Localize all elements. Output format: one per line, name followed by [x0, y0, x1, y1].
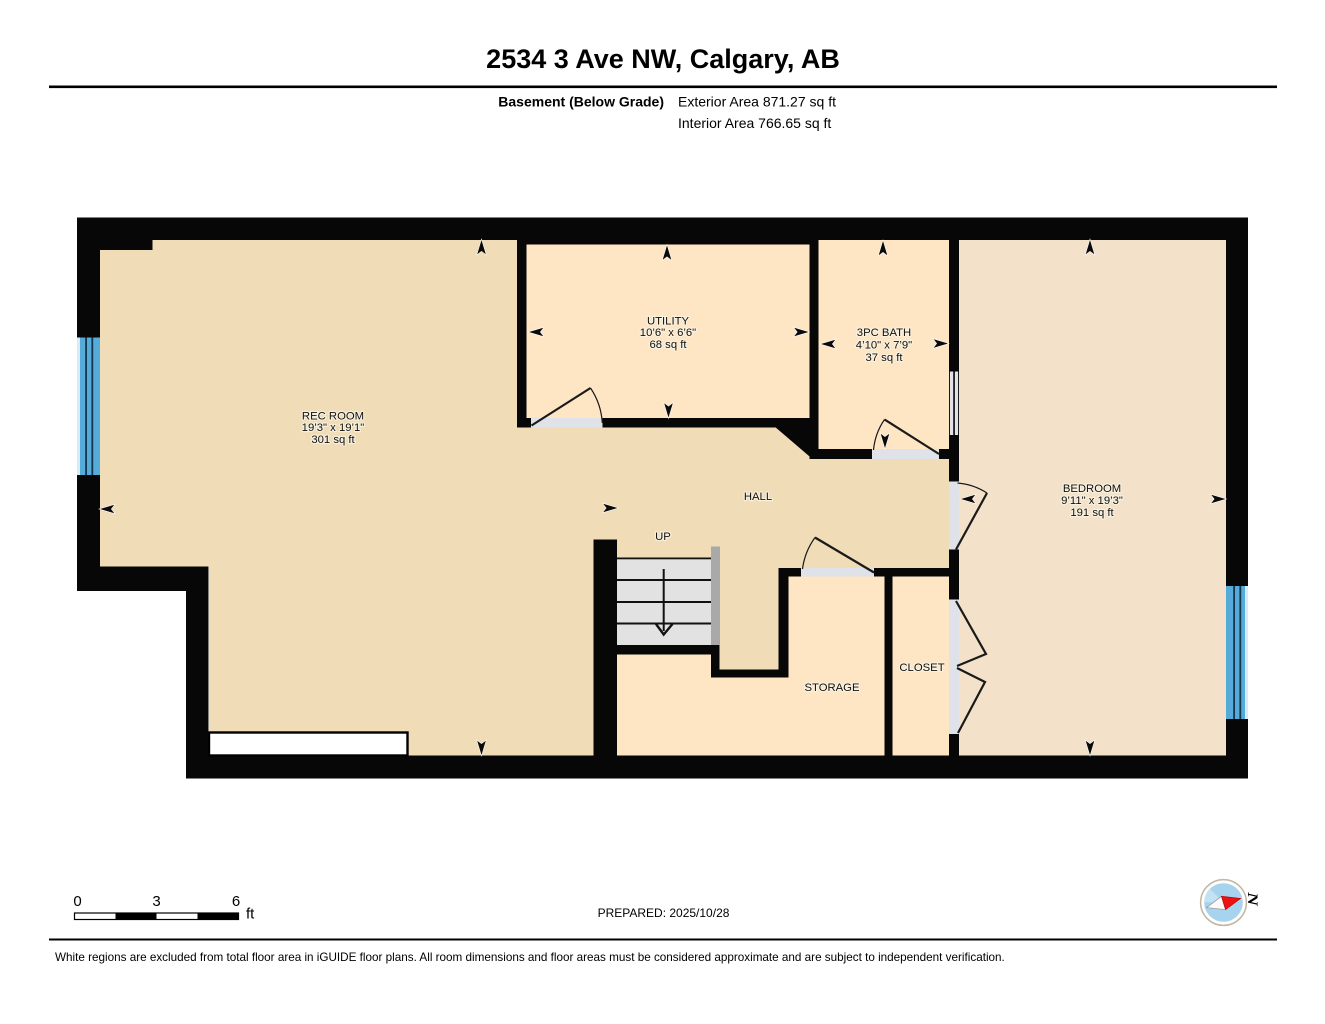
svg-text:3: 3 — [152, 893, 160, 910]
svg-text:N: N — [1244, 891, 1260, 907]
svg-text:UP: UP — [655, 531, 671, 543]
svg-text:CLOSET: CLOSET — [899, 662, 944, 674]
svg-text:2534 3 Ave NW, Calgary, AB: 2534 3 Ave NW, Calgary, AB — [486, 44, 840, 74]
svg-text:Exterior Area 871.27 sq ft: Exterior Area 871.27 sq ft — [678, 94, 836, 110]
svg-text:Basement (Below Grade): Basement (Below Grade) — [498, 94, 664, 110]
svg-text:0: 0 — [73, 893, 81, 910]
svg-text:REC ROOM: REC ROOM — [302, 411, 364, 423]
svg-text:191 sq ft: 191 sq ft — [1070, 507, 1114, 519]
svg-text:3PC BATH: 3PC BATH — [857, 327, 911, 339]
svg-text:ft: ft — [246, 906, 255, 923]
svg-text:6: 6 — [232, 893, 240, 910]
svg-text:Interior Area 766.65 sq ft: Interior Area 766.65 sq ft — [678, 115, 831, 131]
svg-text:BEDROOM: BEDROOM — [1063, 483, 1121, 495]
svg-text:9’11" x 19’3": 9’11" x 19’3" — [1061, 495, 1123, 507]
svg-text:White regions are excluded fro: White regions are excluded from total fl… — [55, 951, 1005, 964]
svg-text:UTILITY: UTILITY — [647, 316, 690, 328]
svg-text:HALL: HALL — [744, 491, 772, 503]
svg-text:10’6" x 6’6": 10’6" x 6’6" — [640, 327, 696, 339]
svg-text:19’3" x 19’1": 19’3" x 19’1" — [302, 422, 365, 434]
svg-text:PREPARED: 2025/10/28: PREPARED: 2025/10/28 — [598, 906, 730, 920]
svg-text:37 sq ft: 37 sq ft — [865, 352, 903, 364]
svg-text:STORAGE: STORAGE — [804, 682, 859, 694]
svg-text:4’10" x 7’9": 4’10" x 7’9" — [856, 340, 912, 352]
svg-text:301 sq ft: 301 sq ft — [311, 434, 355, 446]
svg-text:68 sq ft: 68 sq ft — [649, 339, 687, 351]
